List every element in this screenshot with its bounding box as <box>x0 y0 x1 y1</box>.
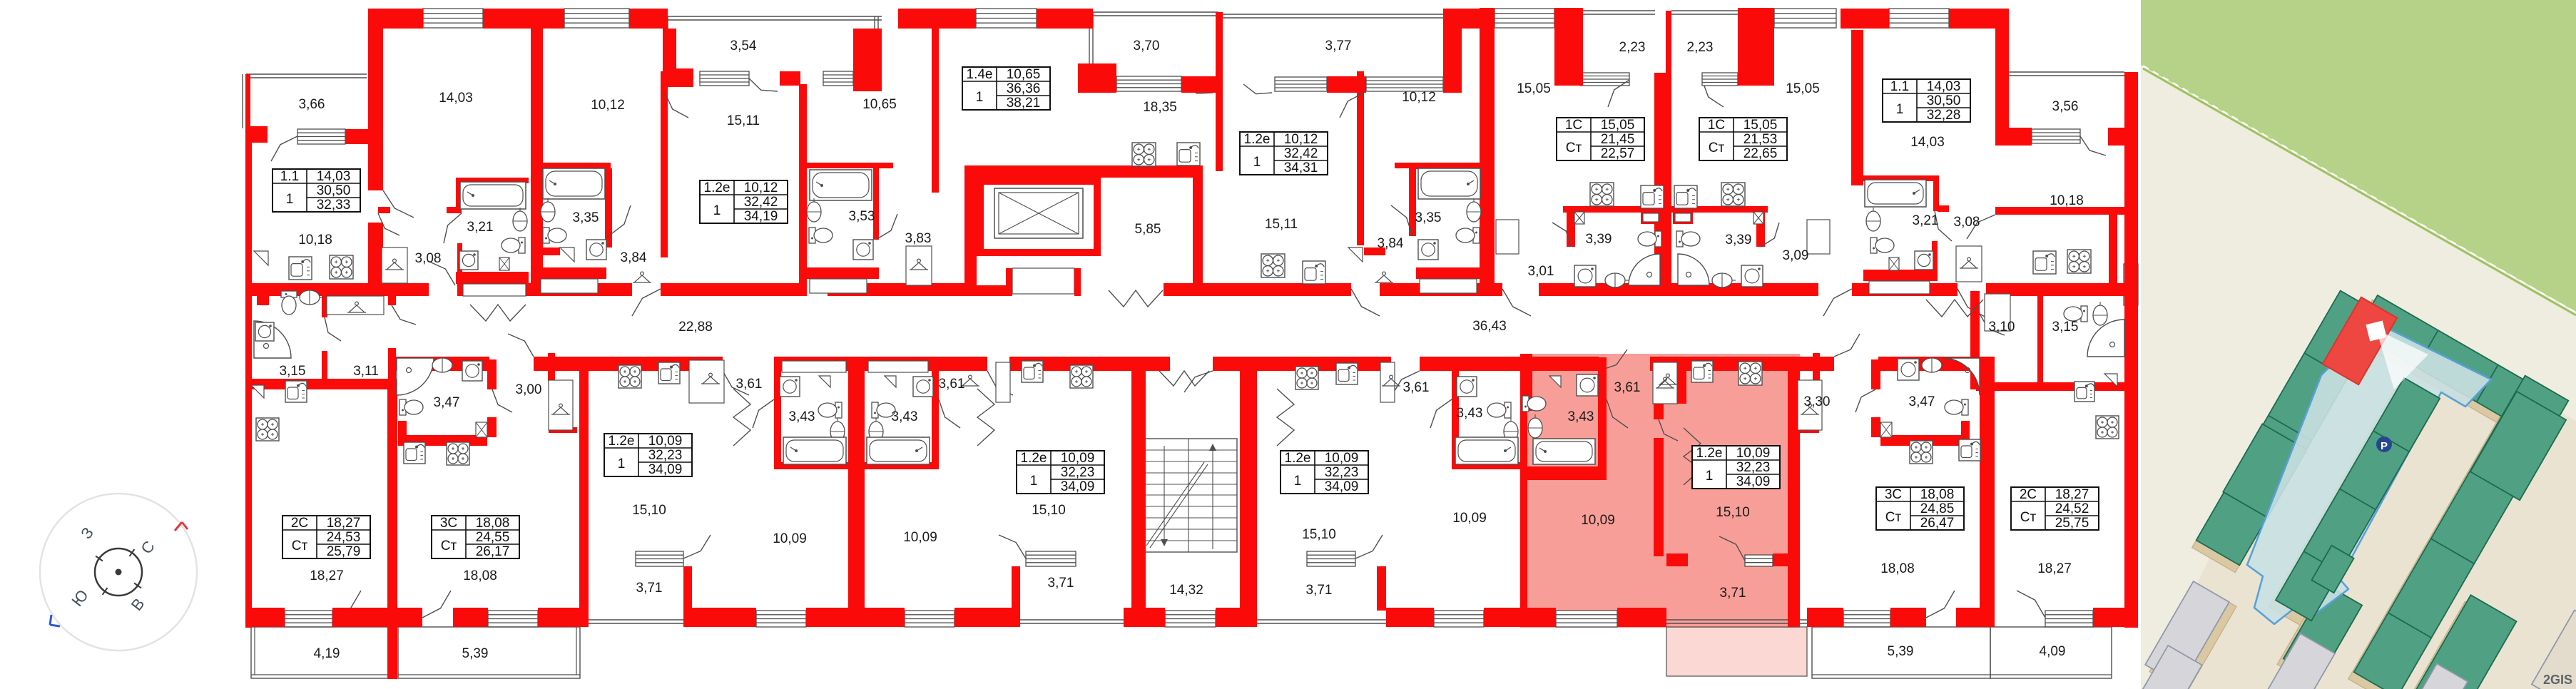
svg-text:2С: 2С <box>2020 487 2037 502</box>
svg-text:15,10: 15,10 <box>1716 505 1750 520</box>
svg-text:3,84: 3,84 <box>1378 236 1404 251</box>
svg-text:18,08: 18,08 <box>463 568 497 583</box>
svg-text:3,70: 3,70 <box>1134 39 1160 53</box>
svg-text:22,88: 22,88 <box>678 320 713 335</box>
svg-text:1.4е: 1.4е <box>967 67 993 82</box>
svg-text:1.2е: 1.2е <box>1244 132 1271 147</box>
svg-text:1.2е: 1.2е <box>609 434 635 449</box>
svg-text:3,21: 3,21 <box>467 220 494 235</box>
svg-text:1: 1 <box>618 456 626 471</box>
svg-text:26,17: 26,17 <box>476 544 510 559</box>
svg-text:26,47: 26,47 <box>1920 516 1955 531</box>
svg-text:24,52: 24,52 <box>2055 501 2089 516</box>
svg-text:3,71: 3,71 <box>1720 586 1746 601</box>
svg-text:21,53: 21,53 <box>1743 132 1778 147</box>
svg-text:14,32: 14,32 <box>1169 583 1203 598</box>
svg-text:3,61: 3,61 <box>736 377 763 392</box>
svg-text:15,11: 15,11 <box>727 113 760 128</box>
svg-text:18,35: 18,35 <box>1143 100 1177 115</box>
svg-text:32,23: 32,23 <box>1736 460 1771 475</box>
svg-text:32,33: 32,33 <box>317 198 351 213</box>
svg-text:3,83: 3,83 <box>905 231 932 246</box>
svg-text:38,21: 38,21 <box>1007 96 1041 111</box>
svg-text:3,10: 3,10 <box>1989 320 2015 335</box>
svg-text:3,39: 3,39 <box>1586 232 1612 247</box>
svg-text:36,36: 36,36 <box>1007 81 1041 96</box>
svg-text:15,05: 15,05 <box>1517 81 1551 96</box>
svg-text:18,08: 18,08 <box>476 516 510 531</box>
svg-text:32,42: 32,42 <box>744 195 778 210</box>
svg-text:18,08: 18,08 <box>1920 487 1955 502</box>
svg-text:1.2е: 1.2е <box>1285 451 1311 466</box>
svg-text:3,84: 3,84 <box>621 250 647 265</box>
svg-text:30,50: 30,50 <box>1927 93 1961 108</box>
svg-text:10,65: 10,65 <box>862 97 897 112</box>
svg-text:15,10: 15,10 <box>632 503 666 518</box>
svg-text:5,39: 5,39 <box>462 646 489 661</box>
svg-text:34,09: 34,09 <box>648 462 683 477</box>
svg-text:24,55: 24,55 <box>476 530 510 545</box>
svg-text:15,05: 15,05 <box>1786 81 1820 96</box>
svg-text:3,61: 3,61 <box>939 377 965 392</box>
svg-text:5,39: 5,39 <box>1888 644 1914 659</box>
svg-text:36,43: 36,43 <box>1472 319 1507 334</box>
svg-text:4,09: 4,09 <box>2040 644 2066 659</box>
svg-text:1: 1 <box>713 203 721 218</box>
svg-text:Ст: Ст <box>1709 141 1725 155</box>
svg-text:3,15: 3,15 <box>280 364 306 379</box>
svg-text:3,35: 3,35 <box>573 210 599 225</box>
svg-text:34,31: 34,31 <box>1284 160 1318 175</box>
svg-text:3,71: 3,71 <box>1306 583 1333 598</box>
svg-text:3С: 3С <box>1885 487 1902 502</box>
svg-text:3,43: 3,43 <box>1457 406 1483 421</box>
svg-text:10,09: 10,09 <box>1061 451 1095 466</box>
svg-text:34,09: 34,09 <box>1736 474 1771 489</box>
svg-text:14,03: 14,03 <box>1910 135 1945 150</box>
svg-text:15,10: 15,10 <box>1032 503 1066 518</box>
svg-text:1.2е: 1.2е <box>704 180 730 195</box>
svg-text:32,28: 32,28 <box>1927 108 1961 123</box>
svg-text:3,39: 3,39 <box>1726 233 1752 247</box>
svg-text:1.1: 1.1 <box>1890 79 1909 94</box>
svg-text:10,09: 10,09 <box>1325 451 1359 466</box>
svg-text:32,23: 32,23 <box>1325 465 1359 480</box>
svg-text:3,61: 3,61 <box>1403 380 1430 395</box>
svg-text:3,54: 3,54 <box>730 39 757 53</box>
svg-text:10,09: 10,09 <box>903 530 937 545</box>
svg-text:10,65: 10,65 <box>1007 67 1041 82</box>
svg-text:1.2е: 1.2е <box>1021 451 1047 466</box>
svg-text:30,50: 30,50 <box>317 183 351 198</box>
svg-text:3,47: 3,47 <box>1909 394 1935 409</box>
svg-text:3,53: 3,53 <box>849 209 875 224</box>
svg-text:2GIS: 2GIS <box>2543 673 2572 687</box>
svg-text:14,03: 14,03 <box>1927 79 1961 94</box>
svg-text:32,42: 32,42 <box>1284 146 1318 161</box>
svg-text:Ст: Ст <box>441 539 457 553</box>
svg-text:3,47: 3,47 <box>434 395 460 410</box>
svg-text:1: 1 <box>1253 155 1261 170</box>
svg-text:3,43: 3,43 <box>1568 409 1594 424</box>
svg-text:1С: 1С <box>1565 118 1582 133</box>
svg-text:18,27: 18,27 <box>2037 561 2072 576</box>
svg-text:21,45: 21,45 <box>1601 132 1635 147</box>
svg-text:10,12: 10,12 <box>1402 90 1436 105</box>
svg-text:1: 1 <box>1896 102 1904 117</box>
svg-text:15,10: 15,10 <box>1302 527 1336 542</box>
svg-text:18,08: 18,08 <box>1880 561 1915 576</box>
svg-text:1: 1 <box>286 192 294 207</box>
svg-text:1: 1 <box>1706 469 1714 484</box>
svg-text:3,43: 3,43 <box>789 409 815 424</box>
svg-text:1С: 1С <box>1708 118 1725 133</box>
svg-text:3,66: 3,66 <box>299 97 325 112</box>
svg-text:Ст: Ст <box>1885 510 1902 525</box>
svg-text:25,75: 25,75 <box>2055 516 2089 531</box>
svg-text:22,65: 22,65 <box>1743 146 1778 161</box>
svg-text:4,19: 4,19 <box>314 646 340 661</box>
svg-text:3,71: 3,71 <box>636 581 663 596</box>
svg-text:3,43: 3,43 <box>892 409 918 424</box>
svg-text:14,03: 14,03 <box>439 91 473 106</box>
svg-text:18,27: 18,27 <box>310 568 344 583</box>
svg-text:34,09: 34,09 <box>1061 479 1095 494</box>
svg-text:Ст: Ст <box>2020 510 2037 525</box>
svg-text:1.2е: 1.2е <box>1696 446 1723 461</box>
svg-text:2,23: 2,23 <box>1687 40 1714 55</box>
svg-text:P: P <box>2381 440 2388 452</box>
svg-text:3,56: 3,56 <box>2052 99 2079 114</box>
svg-text:15,05: 15,05 <box>1601 118 1635 133</box>
svg-text:3,00: 3,00 <box>516 382 542 397</box>
svg-text:2С: 2С <box>291 516 308 531</box>
svg-text:3,21: 3,21 <box>1913 213 1939 228</box>
svg-text:3,77: 3,77 <box>1325 39 1352 53</box>
svg-text:3,61: 3,61 <box>1614 380 1641 395</box>
svg-text:1: 1 <box>1030 474 1038 489</box>
svg-text:10,09: 10,09 <box>773 531 807 546</box>
svg-text:32,23: 32,23 <box>1061 465 1095 480</box>
svg-text:3,08: 3,08 <box>415 251 442 266</box>
svg-text:1.1: 1.1 <box>280 169 299 184</box>
svg-text:3,71: 3,71 <box>1048 576 1074 591</box>
svg-text:3,11: 3,11 <box>353 364 379 379</box>
svg-text:10,09: 10,09 <box>1452 511 1487 526</box>
svg-text:10,09: 10,09 <box>1581 513 1615 528</box>
svg-text:10,12: 10,12 <box>744 180 778 195</box>
svg-text:1: 1 <box>1294 474 1302 489</box>
svg-text:3,09: 3,09 <box>1783 248 1809 263</box>
svg-text:10,09: 10,09 <box>1736 446 1771 461</box>
svg-text:2,23: 2,23 <box>1619 40 1646 55</box>
svg-text:Ст: Ст <box>292 539 308 553</box>
svg-text:3,30: 3,30 <box>1804 394 1831 409</box>
svg-text:10,18: 10,18 <box>298 233 332 247</box>
svg-text:1: 1 <box>976 90 984 105</box>
svg-text:3,08: 3,08 <box>1954 215 1980 230</box>
svg-text:14,03: 14,03 <box>317 169 351 184</box>
svg-text:3С: 3С <box>440 516 457 531</box>
svg-text:5,85: 5,85 <box>1135 222 1161 237</box>
svg-text:15,05: 15,05 <box>1743 118 1778 133</box>
svg-text:24,53: 24,53 <box>327 530 361 545</box>
svg-text:34,09: 34,09 <box>1325 479 1359 494</box>
svg-text:18,27: 18,27 <box>327 516 361 531</box>
svg-text:3,35: 3,35 <box>1415 210 1442 225</box>
svg-text:18,27: 18,27 <box>2055 487 2089 502</box>
svg-text:10,18: 10,18 <box>2050 193 2084 208</box>
svg-text:3,01: 3,01 <box>1528 264 1554 279</box>
svg-text:15,11: 15,11 <box>1265 217 1298 232</box>
svg-text:Ст: Ст <box>1566 141 1582 155</box>
svg-text:10,12: 10,12 <box>1284 132 1318 147</box>
svg-text:10,09: 10,09 <box>648 434 683 449</box>
svg-text:10,12: 10,12 <box>591 98 625 113</box>
svg-text:34,19: 34,19 <box>744 209 778 224</box>
svg-text:22,57: 22,57 <box>1601 146 1635 161</box>
svg-text:32,23: 32,23 <box>648 448 683 463</box>
svg-text:24,85: 24,85 <box>1920 501 1955 516</box>
svg-text:3,15: 3,15 <box>2052 320 2079 335</box>
svg-text:25,79: 25,79 <box>327 544 361 559</box>
